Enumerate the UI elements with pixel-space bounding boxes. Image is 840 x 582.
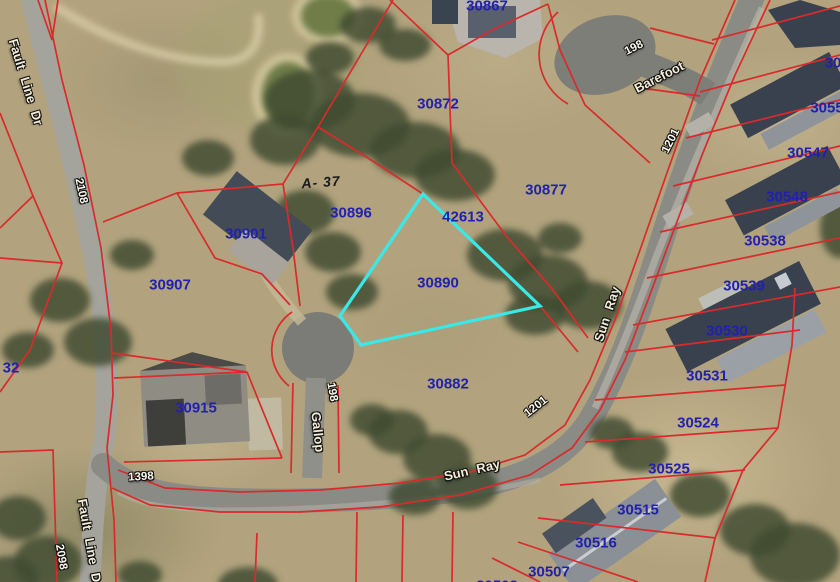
aerial-map-svg xyxy=(0,0,840,582)
driveway-30915 xyxy=(247,397,283,450)
road-gallop-stem xyxy=(312,378,316,478)
house-top-right-corner xyxy=(768,0,840,48)
gis-aerial-parcel-map[interactable]: 30867 30872 30877 30896 42613 30901 3089… xyxy=(0,0,840,582)
house-30531 xyxy=(665,261,833,397)
